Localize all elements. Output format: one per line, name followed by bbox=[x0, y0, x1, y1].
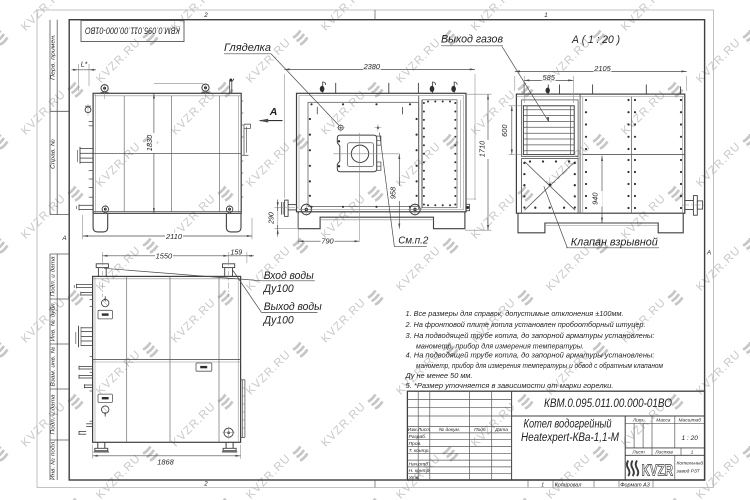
svg-text:завод РЗТ: завод РЗТ bbox=[676, 469, 701, 475]
svg-text:Котел водогрейный: Котел водогрейный bbox=[524, 418, 612, 430]
svg-text:2. На фронтовой плите котла ус: 2. На фронтовой плите котла установлен п… bbox=[405, 320, 646, 329]
svg-text:Инв. № подл.: Инв. № подл. bbox=[51, 440, 57, 480]
svg-text:2380: 2380 bbox=[363, 62, 381, 71]
svg-text:Подп. и дата: Подп. и дата bbox=[51, 257, 57, 297]
svg-text:1710: 1710 bbox=[477, 140, 486, 157]
svg-text:5. *Размер уточняется в зависи: 5. *Размер уточняется в зависимости от м… bbox=[406, 381, 614, 390]
svg-text:159: 159 bbox=[230, 249, 242, 256]
svg-text:1 : 20: 1 : 20 bbox=[681, 435, 698, 442]
svg-text:Выход газов: Выход газов bbox=[441, 34, 503, 46]
svg-text:940: 940 bbox=[591, 192, 600, 205]
svg-text:Изм.: Изм. bbox=[408, 427, 418, 433]
svg-text:290: 290 bbox=[269, 212, 276, 225]
svg-text:Т. контр.: Т. контр. bbox=[409, 448, 430, 454]
svg-text:Разраб.: Разраб. bbox=[409, 434, 427, 440]
svg-text:958: 958 bbox=[388, 186, 397, 199]
svg-text:А: А bbox=[269, 106, 278, 118]
svg-text:Справ. №: Справ. № bbox=[51, 139, 57, 169]
svg-text:1: 1 bbox=[544, 12, 547, 19]
svg-text:1: 1 bbox=[691, 450, 694, 456]
svg-text:манометр, прибор для измерения: манометр, прибор для измерения температу… bbox=[416, 361, 663, 370]
svg-text:2110: 2110 bbox=[165, 232, 183, 241]
svg-text:585: 585 bbox=[543, 73, 556, 82]
svg-text:№ докум.: № докум. bbox=[439, 427, 460, 433]
svg-text:Лит.: Лит. bbox=[632, 418, 644, 424]
svg-text:Копировал: Копировал bbox=[555, 483, 582, 489]
svg-text:Heatexpert-КВа-1,1-М: Heatexpert-КВа-1,1-М bbox=[521, 432, 619, 444]
svg-text:Ду100: Ду100 bbox=[262, 315, 295, 327]
svg-text:2: 2 bbox=[203, 12, 208, 19]
svg-text:Клапан взрывной: Клапан взрывной bbox=[571, 237, 658, 249]
svg-text:Инв. № дубл.: Инв. № дубл. bbox=[51, 302, 57, 342]
svg-text:Ду не менее 50 мм.: Ду не менее 50 мм. bbox=[404, 371, 472, 380]
svg-text:Листов: Листов bbox=[654, 450, 673, 456]
svg-text:1868: 1868 bbox=[157, 457, 174, 466]
svg-text:1830: 1830 bbox=[145, 134, 154, 151]
svg-text:А ( 1 : 20 ): А ( 1 : 20 ) bbox=[571, 34, 620, 46]
svg-text:Утв.: Утв. bbox=[409, 475, 420, 481]
svg-text:Котельный: Котельный bbox=[677, 460, 704, 467]
svg-text:КВМ.0.095.011.00.000-01ВО: КВМ.0.095.011.00.000-01ВО bbox=[85, 25, 180, 36]
svg-text:2: 2 bbox=[203, 481, 208, 488]
svg-text:А: А bbox=[61, 235, 66, 242]
svg-text:Лист: Лист bbox=[417, 427, 430, 433]
svg-text:Лист: Лист bbox=[631, 450, 644, 456]
svg-text:L*: L* bbox=[81, 61, 88, 68]
svg-text:Масса: Масса bbox=[656, 418, 671, 424]
svg-text:Нач.отд: Нач.отд bbox=[409, 461, 429, 467]
svg-text:Перв. примен.: Перв. примен. bbox=[51, 34, 57, 80]
svg-text:1: 1 bbox=[541, 483, 544, 489]
svg-text:Взам. инв. №: Взам. инв. № bbox=[51, 346, 57, 386]
svg-text:Н. контр.: Н. контр. bbox=[409, 468, 431, 474]
svg-text:Масштаб: Масштаб bbox=[678, 418, 701, 424]
svg-text:Подп.: Подп. bbox=[474, 427, 487, 433]
svg-text:1. Все размеры для справок, до: 1. Все размеры для справок, допустимые о… bbox=[406, 309, 624, 318]
svg-text:2105: 2105 bbox=[593, 64, 611, 73]
svg-text:3. На подводящей трубе котла,: 3. На подводящей трубе котла, до запорно… bbox=[406, 331, 655, 340]
svg-text:Выход воды: Выход воды bbox=[264, 301, 322, 313]
svg-text:А: А bbox=[706, 250, 711, 257]
svg-text:Формат А3: Формат А3 bbox=[620, 483, 650, 489]
svg-text:Гляделка: Гляделка bbox=[224, 42, 271, 54]
svg-text:KVZR: KVZR bbox=[642, 463, 674, 480]
svg-text:См.п.2: См.п.2 bbox=[398, 234, 428, 246]
svg-text:Дата: Дата bbox=[494, 427, 508, 433]
svg-text:4. На подводящей трубе котла,: 4. На подводящей трубе котла, до запорно… bbox=[406, 351, 655, 360]
svg-text:Пров.: Пров. bbox=[409, 441, 422, 447]
svg-text:Вход воды: Вход воды bbox=[264, 270, 314, 282]
svg-text:Подп. и дата: Подп. и дата bbox=[51, 395, 57, 435]
svg-text:1550: 1550 bbox=[156, 251, 173, 260]
svg-text:600: 600 bbox=[500, 124, 509, 137]
svg-text:КВМ.0.095.011.00.000-01ВО: КВМ.0.095.011.00.000-01ВО bbox=[544, 396, 672, 410]
svg-text:790: 790 bbox=[321, 237, 334, 246]
svg-text:манометр, прибор для измерения: манометр, прибор для измерения температу… bbox=[416, 342, 584, 351]
svg-text:Ду100: Ду100 bbox=[262, 283, 295, 295]
